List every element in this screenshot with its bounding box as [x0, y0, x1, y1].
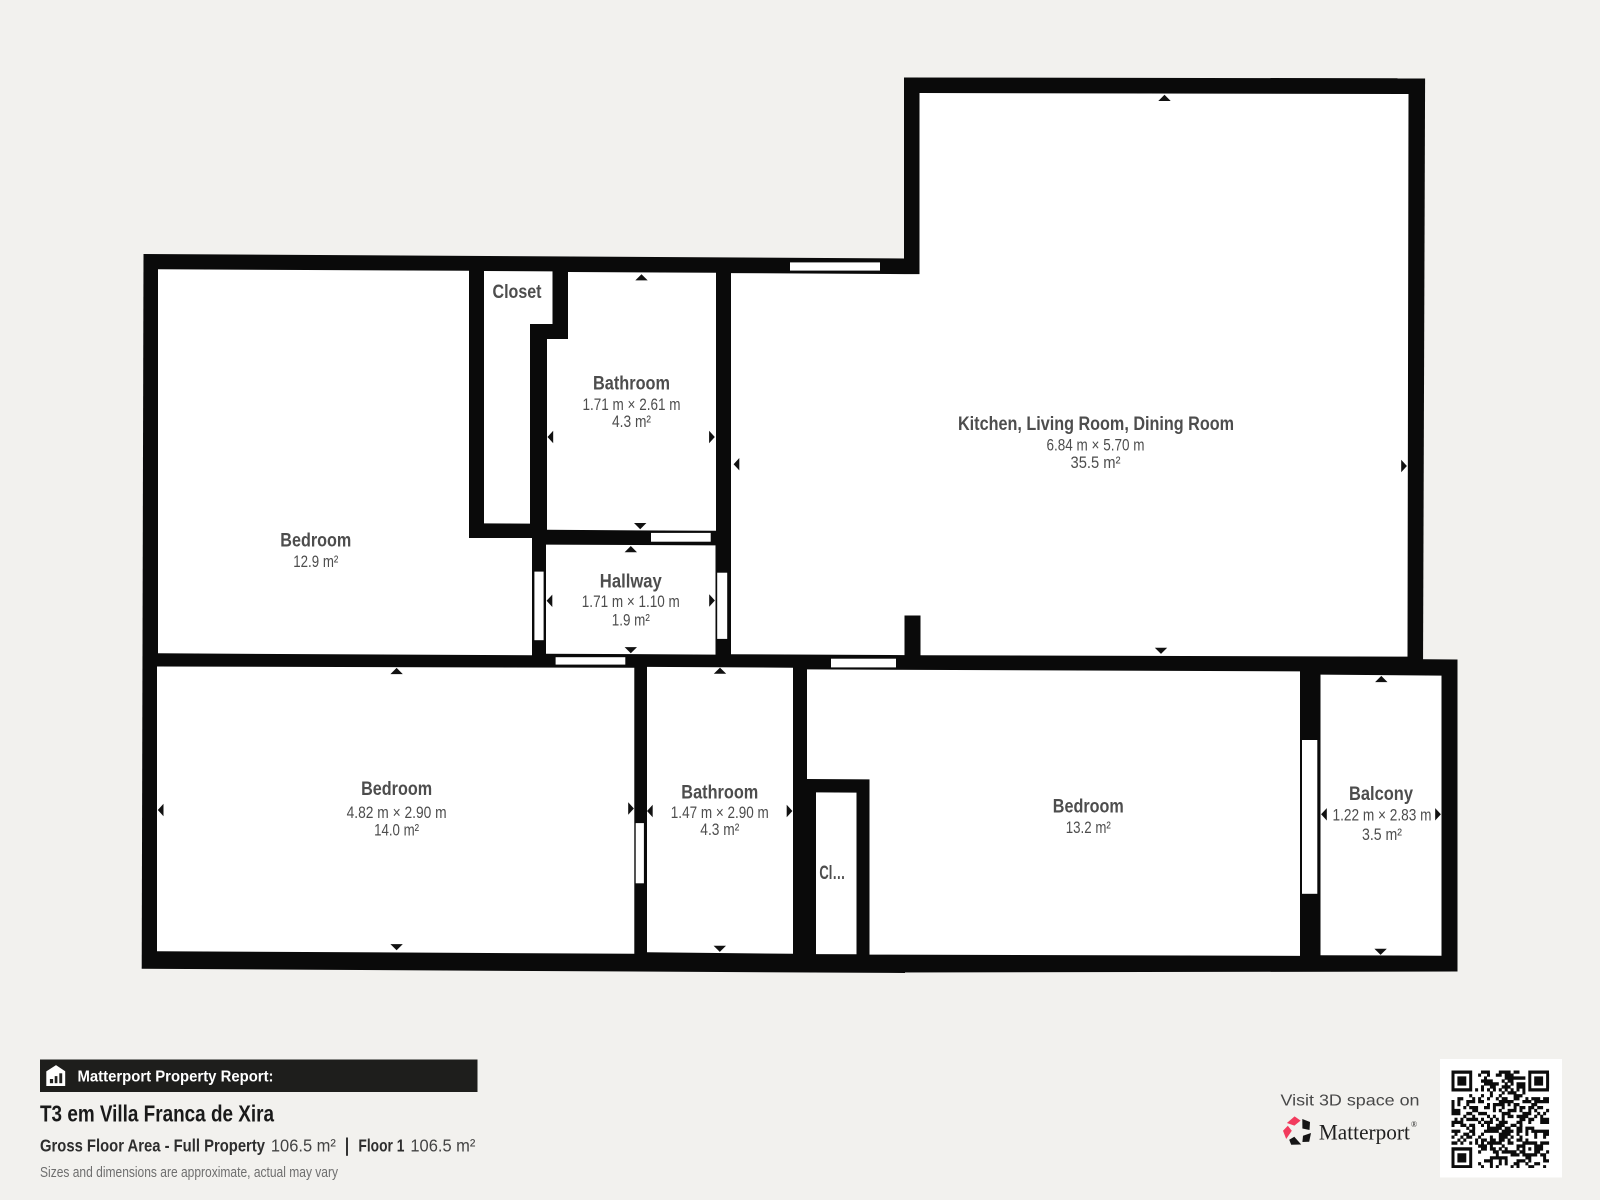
svg-text:Closet: Closet	[493, 282, 543, 303]
svg-text:13.2 m²: 13.2 m²	[1066, 818, 1111, 837]
svg-text:4.3 m²: 4.3 m²	[612, 412, 651, 431]
svg-text:12.9 m²: 12.9 m²	[293, 552, 338, 571]
svg-text:Bedroom: Bedroom	[1053, 797, 1124, 818]
svg-text:Gross Floor Area - Full Proper: Gross Floor Area - Full Property	[40, 1135, 265, 1155]
svg-text:Bedroom: Bedroom	[280, 530, 351, 551]
svg-text:Sizes and dimensions are appro: Sizes and dimensions are approximate, ac…	[40, 1164, 338, 1181]
svg-text:4.3 m²: 4.3 m²	[700, 820, 739, 839]
svg-text:1.9 m²: 1.9 m²	[612, 610, 650, 629]
svg-text:Kitchen, Living Room, Dining R: Kitchen, Living Room, Dining Room	[958, 414, 1234, 435]
svg-text:Floor 1: Floor 1	[358, 1135, 404, 1155]
svg-text:T3 em Villa Franca de Xira: T3 em Villa Franca de Xira	[40, 1100, 274, 1126]
svg-text:1.22 m × 2.83 m: 1.22 m × 2.83 m	[1333, 806, 1432, 825]
svg-text:Visit 3D space on: Visit 3D space on	[1281, 1092, 1420, 1109]
svg-text:14.0 m²: 14.0 m²	[374, 821, 419, 840]
svg-text:Balcony: Balcony	[1349, 784, 1413, 805]
svg-text:Matterport: Matterport	[1319, 1120, 1411, 1145]
svg-text:Cl…: Cl…	[819, 863, 845, 884]
svg-text:1.71 m × 1.10 m: 1.71 m × 1.10 m	[582, 592, 680, 611]
svg-text:Matterport Property Report:: Matterport Property Report:	[78, 1069, 274, 1086]
svg-text:Hallway: Hallway	[600, 572, 662, 593]
svg-text:106.5 m²: 106.5 m²	[271, 1135, 336, 1155]
svg-text:106.5 m²: 106.5 m²	[410, 1135, 475, 1155]
svg-text:Bathroom: Bathroom	[593, 374, 670, 395]
svg-text:6.84 m × 5.70 m: 6.84 m × 5.70 m	[1047, 436, 1145, 455]
svg-text:35.5 m²: 35.5 m²	[1071, 453, 1121, 472]
svg-text:®: ®	[1411, 1120, 1417, 1129]
svg-text:3.5 m²: 3.5 m²	[1362, 825, 1402, 844]
svg-text:4.82 m × 2.90 m: 4.82 m × 2.90 m	[347, 803, 447, 822]
svg-text:Bedroom: Bedroom	[361, 779, 432, 800]
svg-text:Bathroom: Bathroom	[681, 783, 758, 804]
